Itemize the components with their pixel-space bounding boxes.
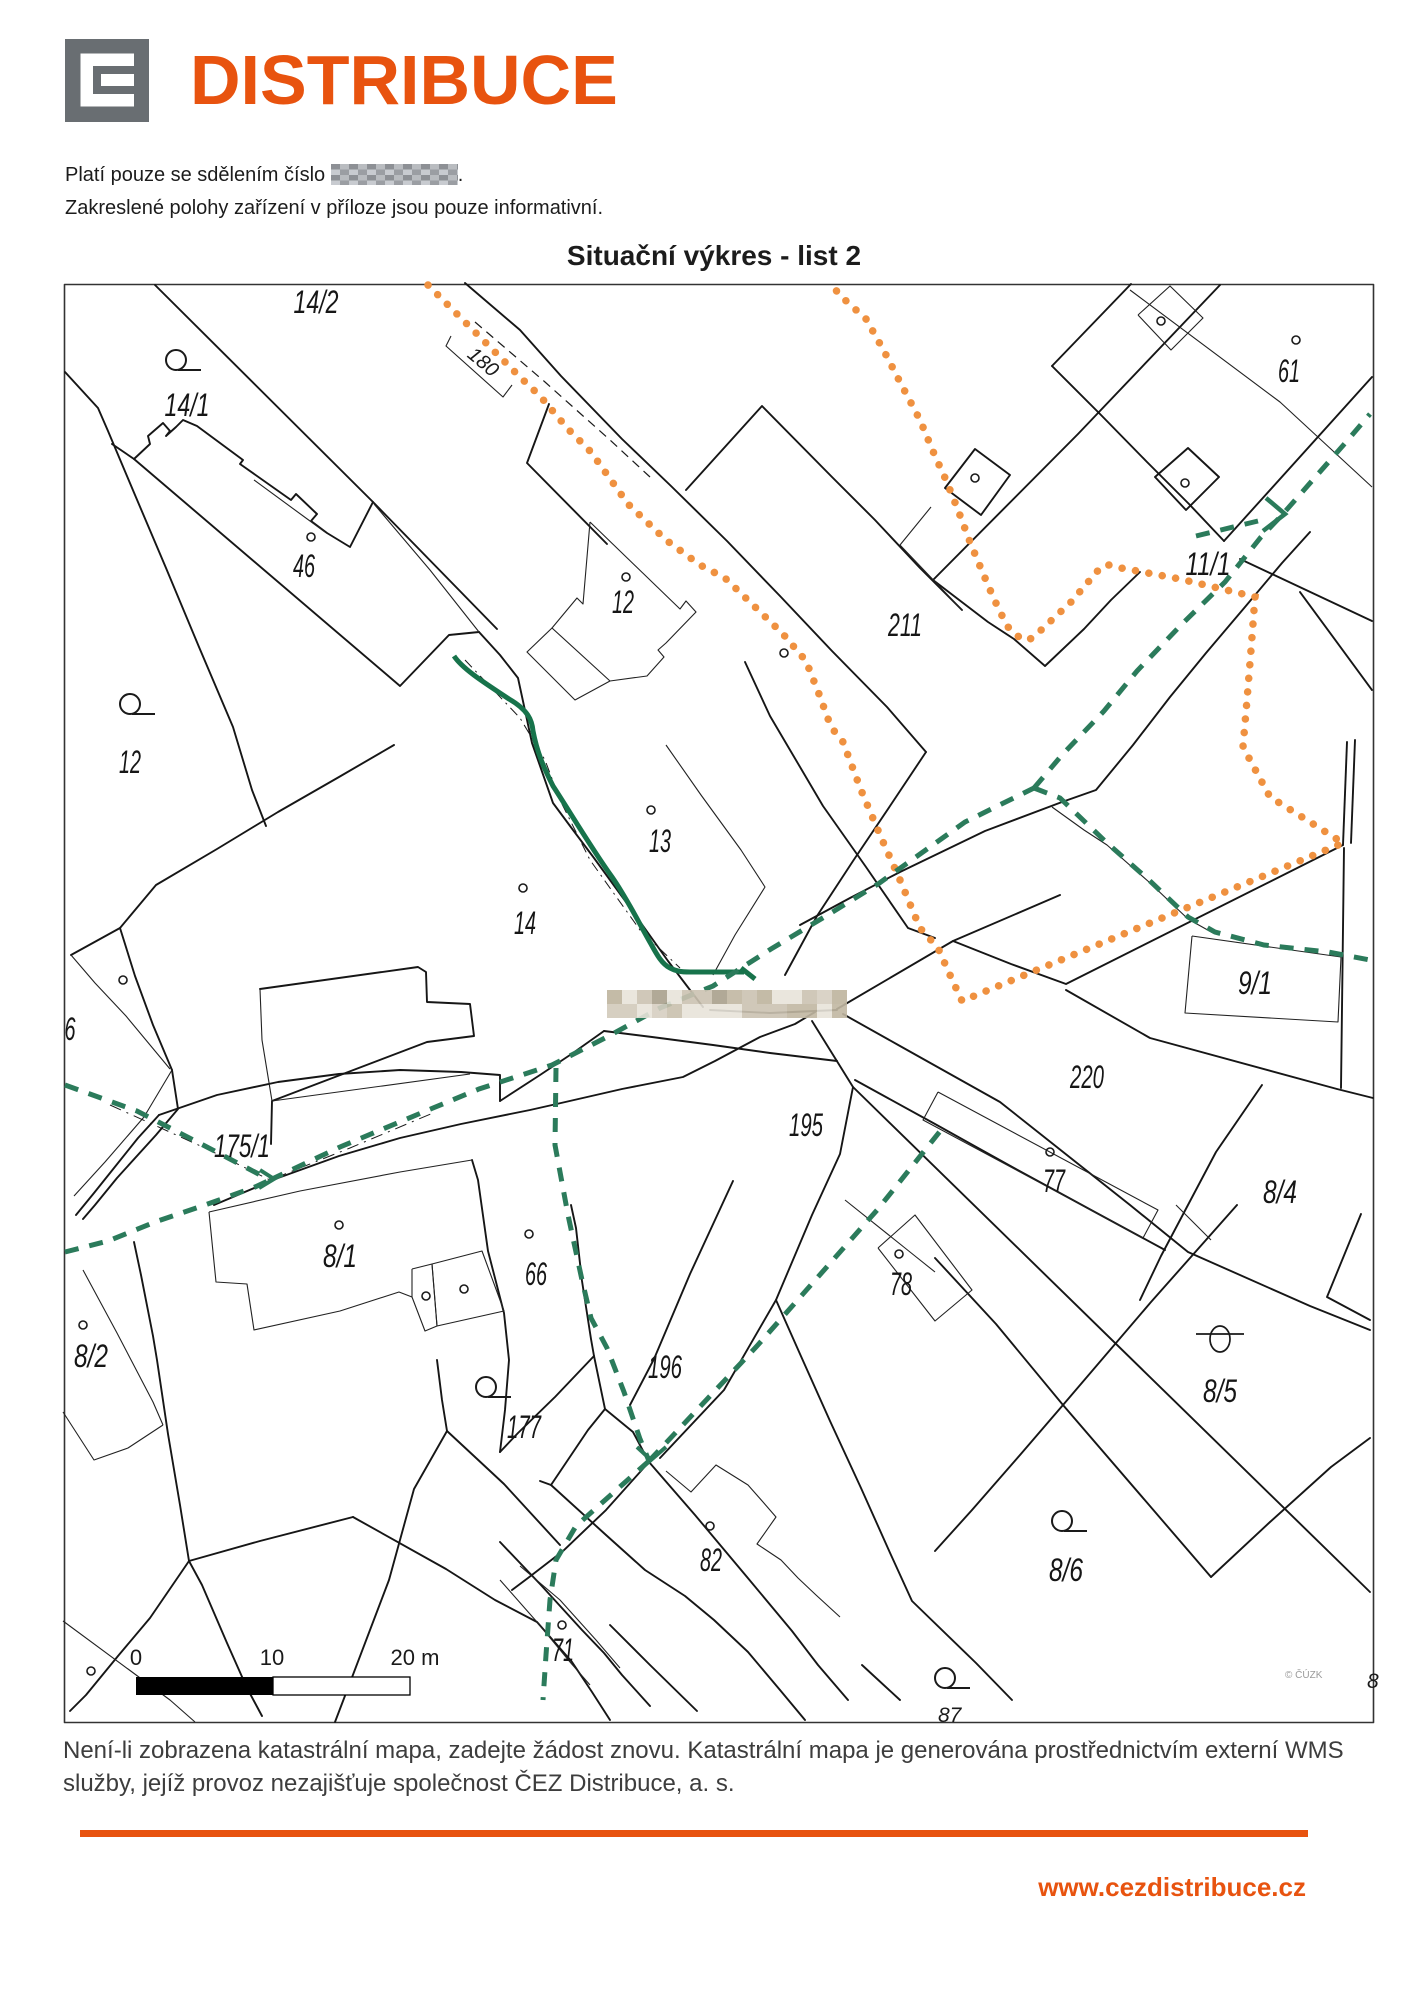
svg-text:8/2: 8/2: [74, 1338, 108, 1374]
svg-text:8/6: 8/6: [1049, 1552, 1083, 1588]
svg-text:196: 196: [648, 1349, 682, 1385]
svg-text:8/1: 8/1: [323, 1238, 357, 1274]
svg-text:10: 10: [260, 1645, 284, 1670]
svg-text:0: 0: [130, 1645, 142, 1670]
svg-text:12: 12: [612, 584, 634, 620]
svg-text:82: 82: [700, 1542, 722, 1578]
svg-text:61: 61: [1278, 353, 1300, 389]
svg-text:12: 12: [119, 744, 141, 780]
svg-text:11/1: 11/1: [1186, 546, 1231, 582]
svg-text:14/2: 14/2: [294, 284, 339, 320]
svg-text:8: 8: [1367, 1670, 1379, 1693]
svg-text:14/1: 14/1: [165, 387, 210, 423]
svg-text:195: 195: [789, 1107, 823, 1143]
svg-text:87: 87: [938, 1704, 963, 1727]
svg-text:9/1: 9/1: [1238, 965, 1272, 1001]
svg-text:175/1: 175/1: [214, 1128, 270, 1164]
svg-text:66: 66: [525, 1256, 547, 1292]
svg-text:211: 211: [887, 607, 922, 643]
svg-text:71: 71: [552, 1632, 574, 1668]
svg-text:46: 46: [293, 548, 315, 584]
svg-text:13: 13: [649, 823, 671, 859]
svg-text:8/4: 8/4: [1263, 1174, 1297, 1210]
svg-text:6: 6: [65, 1011, 76, 1047]
svg-text:8/5: 8/5: [1203, 1373, 1237, 1409]
svg-text:177: 177: [507, 1409, 542, 1445]
svg-text:77: 77: [1043, 1163, 1066, 1199]
svg-text:220: 220: [1069, 1059, 1104, 1095]
svg-text:14: 14: [514, 905, 536, 941]
svg-text:© ČÚZK: © ČÚZK: [1285, 1668, 1323, 1681]
svg-text:20 m: 20 m: [391, 1645, 440, 1670]
svg-text:78: 78: [890, 1266, 912, 1302]
